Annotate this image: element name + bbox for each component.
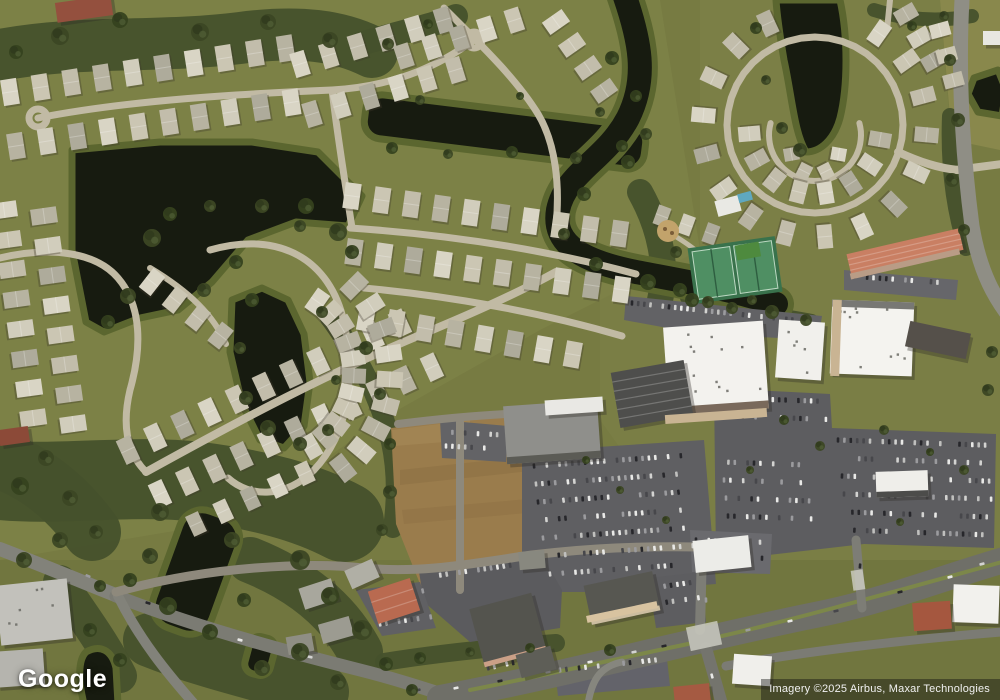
car [599, 531, 602, 536]
car [789, 498, 792, 503]
tree [293, 437, 307, 451]
tree [16, 552, 32, 568]
car [640, 547, 643, 552]
tree [260, 420, 276, 436]
car [888, 439, 891, 444]
tree [204, 200, 216, 212]
car [628, 511, 631, 516]
car [975, 532, 978, 537]
car [625, 530, 628, 535]
bldg-white-center [692, 535, 754, 576]
car [596, 513, 599, 518]
car [682, 525, 685, 530]
car [729, 478, 732, 483]
car [653, 509, 656, 514]
car [771, 397, 774, 402]
car [651, 564, 654, 569]
car [851, 510, 854, 515]
car [669, 526, 672, 531]
car [705, 308, 708, 313]
car [854, 474, 857, 479]
car [575, 497, 578, 502]
car [638, 565, 641, 570]
tree [120, 288, 136, 304]
tree [254, 660, 270, 676]
car [543, 499, 546, 504]
car [849, 438, 852, 443]
pond-edge-ne [968, 70, 1000, 116]
car [637, 301, 640, 306]
bank-white-east [876, 470, 932, 501]
parking-lot [440, 420, 508, 462]
car [808, 498, 811, 503]
car [723, 477, 726, 482]
car [951, 495, 954, 500]
car [843, 491, 846, 496]
tree [239, 391, 253, 405]
car [889, 511, 892, 516]
car [858, 563, 861, 568]
tree [423, 19, 433, 29]
car [909, 512, 912, 517]
tree [159, 597, 177, 615]
car [979, 460, 982, 465]
car [915, 458, 918, 463]
car [936, 280, 939, 285]
car [723, 310, 726, 315]
tree [670, 246, 682, 258]
tree [605, 51, 619, 65]
car [921, 512, 924, 517]
tree [51, 27, 69, 45]
car [843, 438, 846, 443]
car [746, 514, 749, 519]
car [631, 529, 634, 534]
car [605, 531, 608, 536]
tree [958, 224, 970, 236]
car [947, 459, 950, 464]
car [536, 499, 539, 504]
car [797, 398, 800, 403]
tree [322, 424, 334, 436]
car [600, 495, 603, 500]
tree [52, 532, 68, 548]
car [967, 460, 970, 465]
tree [616, 140, 628, 152]
tree [322, 32, 338, 48]
car [643, 474, 646, 479]
tree [113, 653, 127, 667]
car [583, 551, 586, 556]
tree [359, 341, 373, 355]
car [954, 459, 957, 464]
tree [726, 302, 738, 314]
tree [376, 524, 388, 536]
car [990, 496, 993, 501]
car [634, 547, 637, 552]
car [759, 540, 762, 545]
car [894, 439, 897, 444]
tree [321, 587, 339, 605]
tree [945, 173, 959, 187]
car [752, 514, 755, 519]
car [733, 460, 736, 465]
car [855, 492, 858, 497]
house [691, 105, 718, 124]
house [374, 370, 403, 389]
car [672, 544, 675, 549]
house [912, 126, 939, 145]
car [971, 442, 974, 447]
car [968, 532, 971, 537]
car [988, 478, 991, 483]
car [483, 445, 486, 450]
tree [896, 518, 904, 526]
car [945, 495, 948, 500]
tree [352, 620, 372, 640]
car [612, 567, 615, 572]
tree [673, 283, 687, 297]
tree [331, 375, 341, 385]
car [592, 477, 595, 482]
tree [951, 113, 965, 127]
car [705, 597, 708, 602]
car [935, 459, 938, 464]
tree [907, 21, 917, 31]
car [746, 460, 749, 465]
car [649, 473, 652, 478]
car [737, 496, 740, 501]
tree [577, 187, 591, 201]
satellite-map-canvas[interactable] [0, 0, 1000, 700]
car [630, 475, 633, 480]
car [765, 515, 768, 520]
tree [379, 657, 393, 671]
car [881, 439, 884, 444]
car [870, 510, 873, 515]
car [573, 533, 576, 538]
tree [443, 149, 453, 159]
google-logo[interactable]: Google [18, 665, 107, 694]
tree [750, 22, 762, 34]
tree [640, 274, 656, 290]
car [541, 481, 544, 486]
car [932, 494, 935, 499]
car [759, 461, 762, 466]
house [828, 146, 847, 163]
car [872, 275, 875, 280]
car [939, 441, 942, 446]
car [825, 417, 828, 422]
car [534, 481, 537, 486]
car [943, 531, 946, 536]
car [871, 456, 874, 461]
car [926, 440, 929, 445]
car [755, 478, 758, 483]
car [759, 514, 762, 519]
car [791, 462, 794, 467]
car [686, 306, 689, 311]
car [581, 496, 584, 501]
tree [83, 623, 97, 637]
car [917, 530, 920, 535]
car [776, 497, 779, 502]
car [573, 479, 576, 484]
tree [621, 155, 635, 169]
car [635, 456, 638, 461]
tree [291, 643, 309, 661]
car [554, 480, 557, 485]
map-viewport[interactable]: Google Imagery ©2025 Airbus, Maxar Techn… [0, 0, 1000, 700]
car [962, 531, 965, 536]
car [949, 531, 952, 536]
car [958, 442, 961, 447]
tree [414, 652, 426, 664]
car [593, 532, 596, 537]
car [797, 462, 800, 467]
tree [345, 245, 359, 259]
tree [112, 12, 128, 28]
car [615, 457, 618, 462]
car [451, 430, 454, 435]
tree [640, 128, 652, 140]
car [856, 438, 859, 443]
tree [260, 14, 276, 30]
tree [38, 450, 54, 466]
tree [229, 255, 243, 269]
house [815, 222, 834, 249]
tree [62, 490, 78, 506]
car [760, 314, 763, 319]
car [949, 477, 952, 482]
tree [386, 142, 398, 154]
car [979, 514, 982, 519]
playground [657, 220, 679, 242]
car [750, 496, 753, 501]
car [878, 276, 881, 281]
car [857, 510, 860, 515]
car [866, 528, 869, 533]
car [643, 302, 646, 307]
car [634, 511, 637, 516]
tree [237, 593, 251, 607]
car [791, 516, 794, 521]
car [596, 550, 599, 555]
car [816, 398, 819, 403]
car [598, 477, 601, 482]
car [679, 544, 682, 549]
tree [604, 644, 616, 656]
tree [383, 485, 397, 499]
car [864, 510, 867, 515]
car [981, 532, 984, 537]
car [969, 478, 972, 483]
car [784, 397, 787, 402]
tree [793, 143, 807, 157]
bldg-gray-2 [518, 550, 549, 574]
tree [630, 90, 642, 102]
tree [815, 441, 825, 451]
tree [329, 223, 347, 241]
car [910, 278, 913, 283]
car [920, 440, 923, 445]
tree [765, 305, 779, 319]
car [717, 309, 720, 314]
car [733, 514, 736, 519]
car [568, 497, 571, 502]
car [965, 442, 968, 447]
car [977, 442, 980, 447]
car [780, 479, 783, 484]
car [862, 492, 865, 497]
car [810, 398, 813, 403]
car [862, 438, 865, 443]
car [805, 416, 808, 421]
tree [290, 550, 310, 570]
car [583, 514, 586, 519]
car [778, 397, 781, 402]
car [647, 455, 650, 460]
tree [525, 643, 535, 653]
car [637, 529, 640, 534]
car [981, 478, 984, 483]
car [451, 444, 454, 449]
tree [982, 384, 994, 396]
bldg-red-se [912, 600, 955, 634]
car [607, 494, 610, 499]
car [580, 569, 583, 574]
car [587, 569, 590, 574]
car [445, 443, 448, 448]
car [580, 533, 583, 538]
car [868, 492, 871, 497]
tree [382, 38, 394, 50]
car [958, 495, 961, 500]
tree [374, 388, 386, 400]
car [799, 416, 802, 421]
car [757, 496, 760, 501]
tree [776, 122, 788, 134]
car [864, 456, 867, 461]
tree [506, 146, 518, 158]
car [627, 548, 630, 553]
car [975, 478, 978, 483]
tree [595, 107, 605, 117]
car [725, 495, 728, 500]
tree [702, 296, 714, 308]
car [670, 563, 673, 568]
car [901, 440, 904, 445]
car [496, 432, 499, 437]
car [727, 460, 730, 465]
car [960, 513, 963, 518]
tree [415, 95, 425, 105]
car [977, 496, 980, 501]
car [985, 514, 988, 519]
car [622, 512, 625, 517]
tree [589, 257, 603, 271]
car [586, 532, 589, 537]
car [650, 528, 653, 533]
car [564, 515, 567, 520]
car [793, 416, 796, 421]
car [612, 530, 615, 535]
car [858, 456, 861, 461]
car [795, 498, 798, 503]
tree [123, 573, 137, 587]
tree [747, 295, 757, 305]
tree [330, 674, 346, 690]
tree [202, 624, 218, 640]
tree [662, 516, 670, 524]
tree [406, 684, 418, 696]
tree [142, 548, 158, 564]
tree [197, 283, 211, 297]
car [934, 512, 937, 517]
car [647, 510, 650, 515]
car [674, 305, 677, 310]
car [902, 511, 905, 516]
tree [151, 503, 169, 521]
tree [384, 438, 396, 450]
car [903, 458, 906, 463]
tree [582, 456, 590, 464]
tree [879, 425, 889, 435]
car [589, 550, 592, 555]
car [761, 556, 764, 561]
tree [191, 23, 209, 41]
tree [316, 306, 328, 318]
tree [761, 75, 771, 85]
car [837, 437, 840, 442]
car [711, 309, 714, 314]
car [930, 279, 933, 284]
car [973, 514, 976, 519]
tree [779, 415, 789, 425]
car [879, 528, 882, 533]
car [727, 513, 730, 518]
car [801, 498, 804, 503]
car [464, 430, 467, 435]
car [611, 476, 614, 481]
car [661, 303, 664, 308]
car [984, 442, 987, 447]
car [913, 440, 916, 445]
house [738, 124, 763, 143]
tree [800, 314, 812, 326]
store-grocery [830, 300, 918, 380]
car [772, 461, 775, 466]
car [557, 552, 560, 557]
car [680, 306, 683, 311]
car [803, 398, 806, 403]
tree [939, 11, 949, 21]
car [647, 546, 650, 551]
house [340, 368, 367, 386]
car [885, 529, 888, 534]
car [692, 307, 695, 312]
car [923, 530, 926, 535]
car [679, 453, 682, 458]
car [667, 304, 670, 309]
car [464, 444, 467, 449]
car [664, 490, 667, 495]
tree [570, 152, 582, 164]
tree [163, 207, 177, 221]
tree [926, 448, 934, 456]
car [588, 496, 591, 501]
car [761, 479, 764, 484]
